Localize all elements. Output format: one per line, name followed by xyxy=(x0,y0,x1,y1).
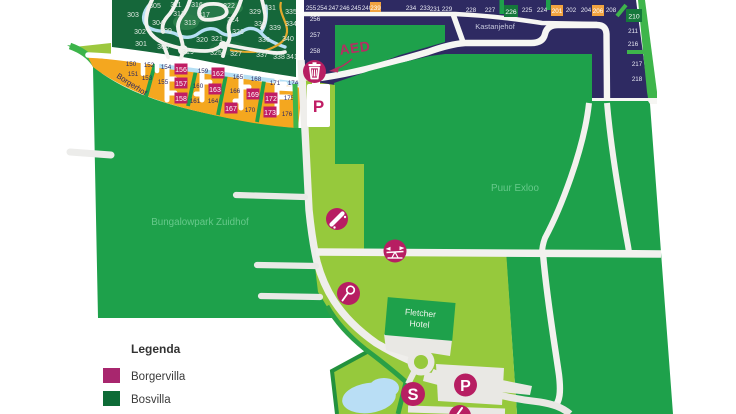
svg-text:309: 309 xyxy=(160,28,172,35)
svg-text:204: 204 xyxy=(581,7,592,14)
svg-text:156: 156 xyxy=(175,67,187,74)
svg-text:322: 322 xyxy=(223,3,235,10)
svg-text:164: 164 xyxy=(208,98,219,105)
svg-text:326: 326 xyxy=(232,29,244,36)
svg-text:S: S xyxy=(407,386,418,404)
svg-text:159: 159 xyxy=(198,68,209,75)
svg-text:150: 150 xyxy=(126,61,137,68)
svg-text:339: 339 xyxy=(269,25,281,32)
svg-text:224: 224 xyxy=(537,7,548,14)
svg-text:336: 336 xyxy=(258,37,270,44)
svg-text:168: 168 xyxy=(251,76,262,83)
svg-text:229: 229 xyxy=(442,6,453,13)
svg-text:Kastanjehof: Kastanjehof xyxy=(475,22,516,31)
svg-text:254: 254 xyxy=(317,5,328,12)
svg-text:330: 330 xyxy=(254,21,266,28)
svg-text:231: 231 xyxy=(430,6,441,13)
svg-text:Bungalowpark Zuidhof: Bungalowpark Zuidhof xyxy=(151,217,249,228)
svg-text:301: 301 xyxy=(135,41,147,48)
svg-text:320: 320 xyxy=(196,37,208,44)
svg-text:319: 319 xyxy=(182,49,194,56)
svg-text:239: 239 xyxy=(370,5,381,12)
svg-text:Borgervilla: Borgervilla xyxy=(131,371,186,383)
svg-text:234: 234 xyxy=(406,5,417,12)
svg-text:169: 169 xyxy=(247,92,259,99)
svg-text:329: 329 xyxy=(249,9,261,16)
svg-text:167: 167 xyxy=(225,106,237,113)
svg-text:165: 165 xyxy=(233,74,244,81)
svg-text:337: 337 xyxy=(256,52,268,59)
svg-text:154: 154 xyxy=(161,64,172,71)
svg-text:161: 161 xyxy=(190,98,201,105)
svg-text:160: 160 xyxy=(193,83,204,90)
svg-text:Puur Exloo: Puur Exloo xyxy=(491,183,539,194)
svg-text:216: 216 xyxy=(628,41,639,48)
svg-text:317: 317 xyxy=(198,12,210,19)
svg-text:Bosvilla: Bosvilla xyxy=(131,394,171,406)
svg-text:334: 334 xyxy=(285,21,297,28)
svg-text:316: 316 xyxy=(191,2,203,9)
svg-text:166: 166 xyxy=(230,88,241,95)
svg-text:245: 245 xyxy=(351,5,362,12)
svg-text:311: 311 xyxy=(170,2,181,9)
svg-text:Hotel: Hotel xyxy=(409,318,430,330)
svg-text:321: 321 xyxy=(211,36,223,43)
svg-text:257: 257 xyxy=(310,32,321,39)
svg-text:208: 208 xyxy=(606,7,617,14)
svg-text:255: 255 xyxy=(306,5,317,12)
svg-text:302: 302 xyxy=(134,29,146,36)
svg-text:324: 324 xyxy=(227,17,239,24)
svg-text:Legenda: Legenda xyxy=(131,342,181,356)
svg-text:P: P xyxy=(460,378,471,395)
svg-text:210: 210 xyxy=(628,14,640,21)
svg-text:304: 304 xyxy=(152,20,164,27)
svg-text:217: 217 xyxy=(632,61,643,68)
svg-text:228: 228 xyxy=(466,7,477,14)
svg-text:327: 327 xyxy=(230,51,242,58)
svg-text:258: 258 xyxy=(310,48,321,55)
svg-text:340: 340 xyxy=(282,36,294,43)
svg-text:335: 335 xyxy=(285,9,297,16)
svg-text:172: 172 xyxy=(265,96,277,103)
svg-text:305: 305 xyxy=(149,3,161,10)
svg-text:162: 162 xyxy=(212,71,224,78)
svg-text:325: 325 xyxy=(210,50,222,57)
svg-text:338: 338 xyxy=(273,54,285,61)
svg-text:225: 225 xyxy=(522,7,533,14)
svg-text:247: 247 xyxy=(328,5,339,12)
svg-text:303: 303 xyxy=(127,12,139,19)
svg-text:170: 170 xyxy=(245,107,256,114)
svg-text:153: 153 xyxy=(142,75,153,82)
svg-text:227: 227 xyxy=(485,7,496,14)
svg-text:173: 173 xyxy=(264,110,276,117)
svg-text:206: 206 xyxy=(593,8,604,15)
svg-text:155: 155 xyxy=(158,79,169,86)
svg-text:313: 313 xyxy=(184,20,196,27)
svg-text:246: 246 xyxy=(339,5,350,12)
svg-text:331: 331 xyxy=(264,5,276,12)
svg-text:202: 202 xyxy=(566,7,577,14)
svg-text:163: 163 xyxy=(209,87,221,94)
svg-text:226: 226 xyxy=(505,9,517,16)
svg-text:308: 308 xyxy=(157,44,169,51)
svg-text:P: P xyxy=(313,97,324,116)
svg-text:201: 201 xyxy=(552,8,563,15)
svg-text:256: 256 xyxy=(310,16,321,23)
svg-text:157: 157 xyxy=(175,81,187,88)
svg-text:218: 218 xyxy=(632,76,643,83)
svg-text:158: 158 xyxy=(175,96,187,103)
svg-text:312: 312 xyxy=(173,11,185,18)
svg-text:176: 176 xyxy=(282,111,293,118)
svg-text:211: 211 xyxy=(628,28,638,35)
svg-text:171: 171 xyxy=(270,80,281,87)
svg-text:152: 152 xyxy=(144,62,155,69)
